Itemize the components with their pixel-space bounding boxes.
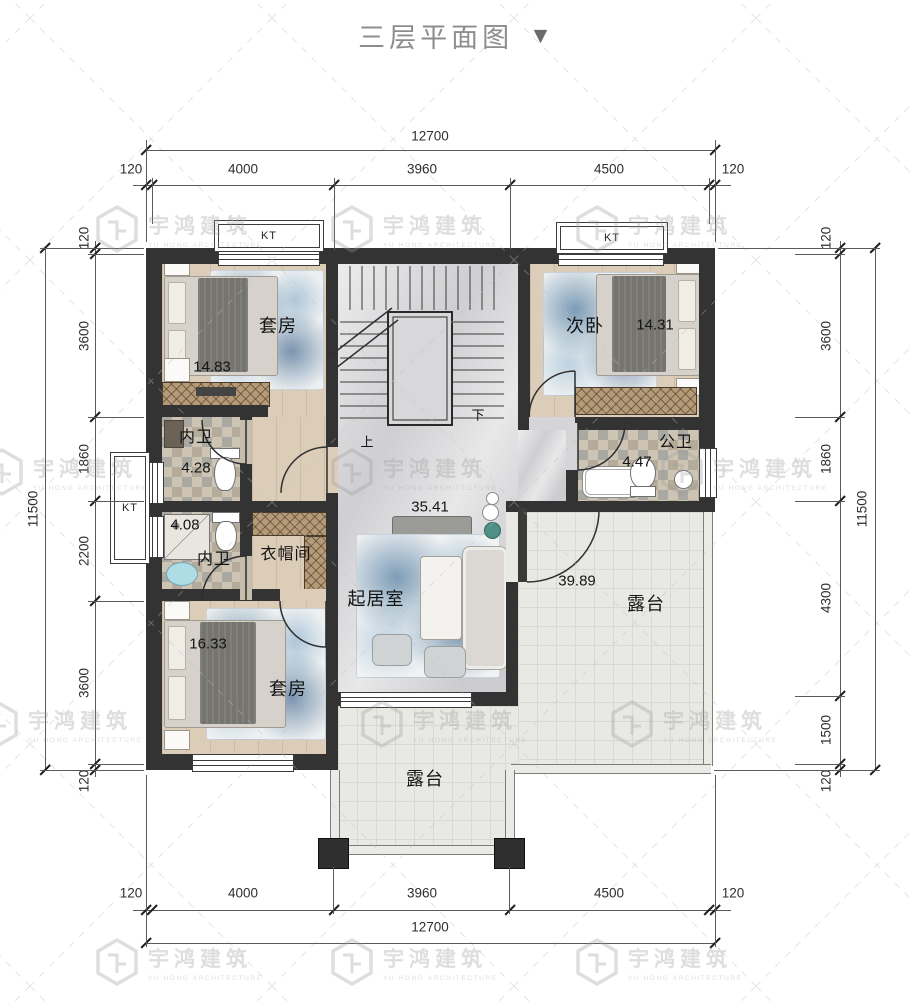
- tv: [196, 387, 236, 396]
- dim-value: 120: [722, 162, 745, 177]
- page-title-row: 三层平面图 ▼: [0, 16, 910, 55]
- toilet-tank: [630, 486, 656, 497]
- room-label: 衣帽间: [260, 540, 311, 564]
- brand-logo-icon: [330, 205, 374, 253]
- room-area: 35.41: [411, 499, 449, 516]
- dim-value: 120: [819, 227, 834, 250]
- door-opening: [566, 423, 578, 470]
- pillow: [168, 676, 186, 720]
- sofa: [462, 546, 508, 670]
- pillow: [678, 280, 696, 322]
- dim-value: 12700: [411, 920, 449, 935]
- wardrobe: [575, 387, 697, 415]
- dim-value: 11500: [26, 491, 41, 528]
- dim-line: [875, 248, 876, 770]
- room-label: 露台: [406, 765, 444, 791]
- plant: [484, 522, 501, 539]
- terrace-railing: [330, 770, 340, 840]
- dim-value: 4000: [228, 162, 258, 177]
- window: [192, 754, 294, 772]
- dim-value: 4000: [228, 886, 258, 901]
- dim-value: 2200: [77, 536, 92, 566]
- collapse-triangle-icon[interactable]: ▼: [529, 22, 552, 49]
- wall: [146, 405, 268, 417]
- dim-value: 1500: [819, 715, 834, 745]
- watermark: 宇鸿建筑YU HONG ARCHITECTURE: [575, 938, 743, 986]
- dim-value: 3960: [407, 162, 437, 177]
- dim-line: [95, 241, 96, 777]
- door-opening: [529, 417, 575, 430]
- toilet: [214, 457, 236, 491]
- dim-line: [45, 248, 46, 770]
- brand-logo-icon: [330, 938, 374, 986]
- room-area: 14.31: [636, 317, 674, 334]
- brand-logo-icon: [575, 938, 619, 986]
- dim-value: 120: [120, 886, 143, 901]
- dim-value: 3600: [77, 321, 92, 351]
- wall: [506, 501, 715, 512]
- page-title: 三层平面图: [358, 16, 513, 55]
- armchair: [424, 646, 466, 678]
- suite-vestibule-floor: [252, 417, 326, 501]
- ac-label: KT: [122, 502, 138, 514]
- room-label: 露台: [627, 590, 665, 616]
- room-label: 公卫: [659, 428, 693, 452]
- brand-logo-icon: [95, 938, 139, 986]
- terrace-railing: [505, 770, 515, 840]
- wardrobe: [252, 512, 328, 536]
- stool: [486, 492, 499, 505]
- ac-label: KT: [261, 230, 277, 242]
- dim-value: 12700: [411, 129, 449, 144]
- room-area: 4.08: [170, 517, 199, 534]
- terrace-railing: [703, 512, 713, 766]
- room-area: 4.28: [181, 460, 210, 477]
- room-area: 4.47: [622, 454, 651, 471]
- wall: [518, 264, 530, 417]
- dim-value: 120: [120, 162, 143, 177]
- window: [699, 448, 717, 498]
- stair-down-label: 下: [471, 405, 484, 424]
- window: [340, 692, 472, 708]
- watermark: 宇鸿建筑YU HONG ARCHITECTURE: [0, 700, 143, 748]
- terrace-railing: [511, 764, 711, 774]
- dim-value: 120: [722, 886, 745, 901]
- armchair: [372, 634, 412, 666]
- door-opening: [240, 420, 252, 464]
- dim-value: 3960: [407, 886, 437, 901]
- ac-label: KT: [604, 232, 620, 244]
- door-opening: [280, 589, 326, 601]
- coffee-table: [420, 556, 462, 640]
- pillow: [168, 626, 186, 670]
- nightstand: [164, 730, 190, 750]
- terrace-railing: [344, 845, 496, 855]
- watermark: 宇鸿建筑YU HONG ARCHITECTURE: [330, 938, 498, 986]
- column: [494, 838, 525, 869]
- room-area: 14.83: [193, 359, 231, 376]
- corridor-floor: [518, 430, 566, 501]
- room-label: 套房: [259, 312, 297, 338]
- dim-line: [146, 943, 715, 944]
- ac-platform: KT: [556, 222, 668, 254]
- terrace-right-floor: [518, 512, 703, 764]
- stair-up-label: 上: [360, 432, 373, 451]
- room-area: 39.89: [558, 573, 596, 590]
- room-label: 内卫: [179, 423, 213, 447]
- dim-value: 11500: [855, 491, 870, 528]
- dim-value: 1860: [77, 444, 92, 474]
- dim-line: [133, 910, 731, 911]
- pillow: [678, 328, 696, 370]
- pillow: [168, 282, 186, 324]
- room-label: 起居室: [348, 585, 405, 611]
- dim-value: 120: [819, 770, 834, 793]
- ac-platform: KT: [110, 452, 150, 564]
- dim-value: 1860: [819, 444, 834, 474]
- room-area: 16.33: [189, 636, 227, 653]
- watermark: 宇鸿建筑YU HONG ARCHITECTURE: [330, 205, 498, 253]
- dim-value: 4500: [594, 886, 624, 901]
- column: [318, 838, 349, 869]
- dim-line: [146, 150, 715, 151]
- room-label: 套房: [269, 675, 307, 701]
- door-opening: [326, 447, 338, 493]
- brand-logo-icon: [0, 700, 19, 748]
- tv-console: [392, 516, 472, 536]
- room-label: 内卫: [197, 545, 231, 569]
- terrace-connector-floor: [505, 706, 518, 771]
- side-table: [482, 504, 499, 521]
- dim-value: 3600: [819, 321, 834, 351]
- dim-value: 120: [77, 227, 92, 250]
- sink: [166, 562, 198, 586]
- wall: [146, 501, 338, 512]
- dim-value: 4300: [819, 583, 834, 613]
- ac-platform: KT: [214, 220, 324, 252]
- dim-line: [133, 185, 731, 186]
- brand-logo-icon: [0, 448, 24, 496]
- nightstand: [164, 358, 190, 382]
- door-opening: [506, 512, 518, 582]
- dim-value: 120: [77, 770, 92, 793]
- watermark: 宇鸿建筑YU HONG ARCHITECTURE: [95, 938, 263, 986]
- door-leaf: [518, 508, 527, 582]
- nightstand: [164, 601, 190, 620]
- door-opening: [240, 556, 252, 600]
- sink: [674, 470, 693, 489]
- dim-value: 3600: [77, 668, 92, 698]
- room-label: 次卧: [566, 312, 604, 338]
- dim-value: 4500: [594, 162, 624, 177]
- brand-logo-icon: [95, 205, 139, 253]
- floor-plan-page: 三层平面图 ▼: [0, 0, 910, 1002]
